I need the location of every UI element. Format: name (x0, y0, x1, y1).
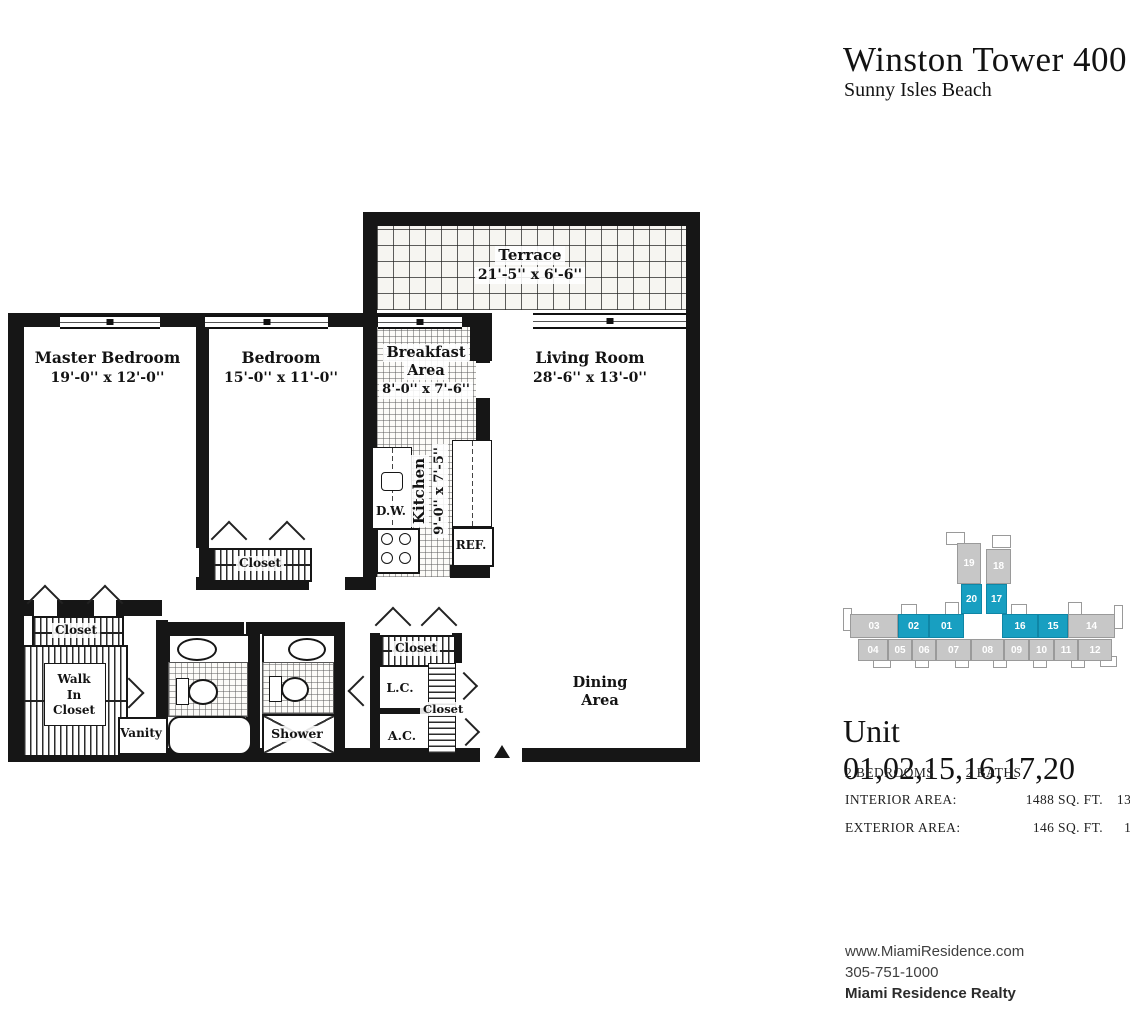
lc-text: L.C. (386, 680, 413, 695)
exterior-m2: 14 M² (1113, 820, 1130, 836)
label-bedroom-closet: Closet (212, 556, 308, 571)
vanity-text: Vanity (120, 726, 162, 740)
keyplan-outline (1033, 660, 1047, 668)
label-shower: Shower (262, 726, 332, 742)
wall (345, 577, 376, 590)
kitchen-name: Kitchen (410, 455, 429, 527)
bath2-sink (288, 638, 326, 661)
keyplan-unit-06: 06 (912, 639, 936, 661)
wall (260, 622, 332, 634)
room-label-terrace: Terrace 21'-5'' x 6'-6'' (440, 246, 620, 284)
label-ref: REF. (454, 538, 488, 553)
breakfast-dims: 8'-0'' x 7'-6'' (379, 382, 473, 398)
keyplan: 19182017030201161514040506070809101112 (843, 532, 1123, 672)
bathtub (168, 716, 252, 755)
interior-m2: 138 M² (1113, 792, 1130, 808)
exterior-label: EXTERIOR AREA: (845, 820, 960, 835)
window (60, 315, 160, 329)
room-label-breakfast: Breakfast Area 8'-0'' x 7'-6'' (378, 344, 474, 399)
closet-text: Closet (392, 641, 440, 656)
wall (370, 656, 380, 748)
master-bedroom-dims: 19'-0'' x 12'-0'' (51, 370, 165, 386)
interior-sqft: 1488 SQ. FT. (988, 792, 1103, 808)
room-label-master-bedroom: Master Bedroom 19'-0'' x 12'-0'' (30, 348, 185, 388)
bedroom-dims: 15'-0'' x 11'-0'' (224, 370, 338, 386)
walkin-line3: Closet (53, 703, 95, 717)
wall (162, 622, 244, 634)
beds-value: 2 BEDROOMS (845, 765, 934, 780)
label-master-closet: Closet (32, 623, 120, 638)
entry-marker (494, 745, 510, 758)
kitchen-sink (381, 472, 403, 491)
footer-company: Miami Residence Realty (845, 983, 1024, 1004)
baths-value: 2 BATHS (966, 765, 1022, 780)
toilet-bowl (281, 677, 309, 702)
building-title: Winston Tower 400 (843, 40, 1127, 80)
bath1-sink (177, 638, 217, 661)
kitchen-dims: 9'-0'' x 7'-5'' (432, 444, 448, 538)
breakfast-name2: Area (404, 362, 448, 380)
keyplan-outline (915, 660, 929, 668)
keyplan-outline (993, 660, 1007, 668)
keyplan-unit-17: 17 (986, 584, 1007, 614)
wall (199, 548, 212, 580)
spec-beds-baths: 2 BEDROOMS 2 BATHS (845, 765, 1021, 781)
living-dims: 28'-6'' x 13'-0'' (533, 370, 647, 386)
breakfast-name1: Breakfast (383, 344, 468, 362)
room-label-living: Living Room 28'-6'' x 13'-0'' (495, 348, 685, 388)
exterior-sqft: 146 SQ. FT. (988, 820, 1103, 836)
keyplan-unit-10: 10 (1029, 639, 1054, 661)
kitchen-counter-right (452, 440, 492, 527)
keyplan-unit-19: 19 (957, 543, 981, 584)
burner (381, 533, 393, 545)
label-walk-in-closet: Walk In Closet (44, 672, 104, 719)
keyplan-unit-15: 15 (1038, 614, 1068, 638)
label-foyer-closet: Closet (420, 702, 464, 716)
keyplan-unit-16: 16 (1002, 614, 1038, 638)
closet-text: Closet (52, 623, 100, 638)
keyplan-unit-18: 18 (986, 549, 1011, 584)
wall (522, 748, 700, 762)
label-lc: L.C. (378, 680, 422, 696)
keyplan-unit-02: 02 (898, 614, 929, 638)
wall (370, 633, 380, 663)
building-subtitle: Sunny Isles Beach (844, 79, 992, 102)
bedroom-name: Bedroom (241, 348, 320, 367)
keyplan-unit-11: 11 (1054, 639, 1078, 661)
burner (399, 552, 411, 564)
terrace-name: Terrace (495, 246, 564, 265)
ac-text: A.C. (388, 728, 416, 743)
keyplan-unit-04: 04 (858, 639, 888, 661)
terrace-dims: 21'-5'' x 6'-6'' (475, 267, 585, 285)
keyplan-outline (1114, 605, 1123, 629)
keyplan-unit-20: 20 (961, 584, 982, 614)
room-label-dining: Dining Area (550, 674, 650, 710)
walkin-line2: In (67, 688, 81, 702)
floorplan: Terrace 21'-5'' x 6'-6'' Master Bedroom … (0, 0, 760, 1020)
keyplan-unit-12: 12 (1078, 639, 1112, 661)
footer: www.MiamiResidence.com 305-751-1000 Miam… (845, 941, 1024, 1004)
wall (363, 212, 377, 322)
terrace-door-window (533, 313, 686, 329)
keyplan-outline (1071, 660, 1085, 668)
keyplan-unit-09: 09 (1004, 639, 1029, 661)
room-label-kitchen: Kitchen 9'-0'' x 7'-5'' (410, 431, 456, 551)
dining-name2: Area (581, 692, 619, 709)
dining-name1: Dining (573, 674, 628, 691)
keyplan-unit-14: 14 (1068, 614, 1115, 638)
door-swing (452, 718, 480, 746)
ref-text: REF. (456, 538, 487, 552)
wall (363, 212, 700, 226)
interior-label: INTERIOR AREA: (845, 792, 957, 807)
closet-text: Closet (420, 702, 466, 716)
label-dw: D.W. (370, 504, 412, 519)
keyplan-outline (992, 535, 1011, 548)
keyplan-unit-01: 01 (929, 614, 964, 638)
master-bedroom-name: Master Bedroom (35, 348, 181, 367)
footer-phone: 305-751-1000 (845, 962, 1024, 983)
label-ac: A.C. (380, 728, 424, 744)
label-vanity: Vanity (116, 726, 166, 741)
room-label-bedroom: Bedroom 15'-0'' x 11'-0'' (207, 348, 355, 388)
burner (381, 552, 393, 564)
spec-interior: INTERIOR AREA: 1488 SQ. FT. 138 M² (845, 792, 1130, 808)
window (378, 315, 462, 329)
dw-text: D.W. (373, 504, 409, 519)
closet-text: Closet (236, 556, 284, 571)
label-hall-closet: Closet (380, 641, 452, 656)
wall (476, 327, 490, 363)
keyplan-outline (955, 660, 969, 668)
keyplan-unit-03: 03 (850, 614, 898, 638)
walkin-line1: Walk (57, 672, 90, 686)
footer-website[interactable]: www.MiamiResidence.com (845, 941, 1024, 962)
living-name: Living Room (535, 348, 644, 367)
wall (686, 212, 700, 762)
floorplan-sheet: Terrace 21'-5'' x 6'-6'' Master Bedroom … (0, 0, 1130, 1020)
shower-text: Shower (268, 726, 326, 742)
spec-exterior: EXTERIOR AREA: 146 SQ. FT. 14 M² (845, 820, 1130, 836)
keyplan-unit-05: 05 (888, 639, 912, 661)
keyplan-unit-08: 08 (971, 639, 1004, 661)
window (205, 315, 328, 329)
keyplan-unit-07: 07 (936, 639, 971, 661)
toilet-bowl (188, 679, 218, 705)
